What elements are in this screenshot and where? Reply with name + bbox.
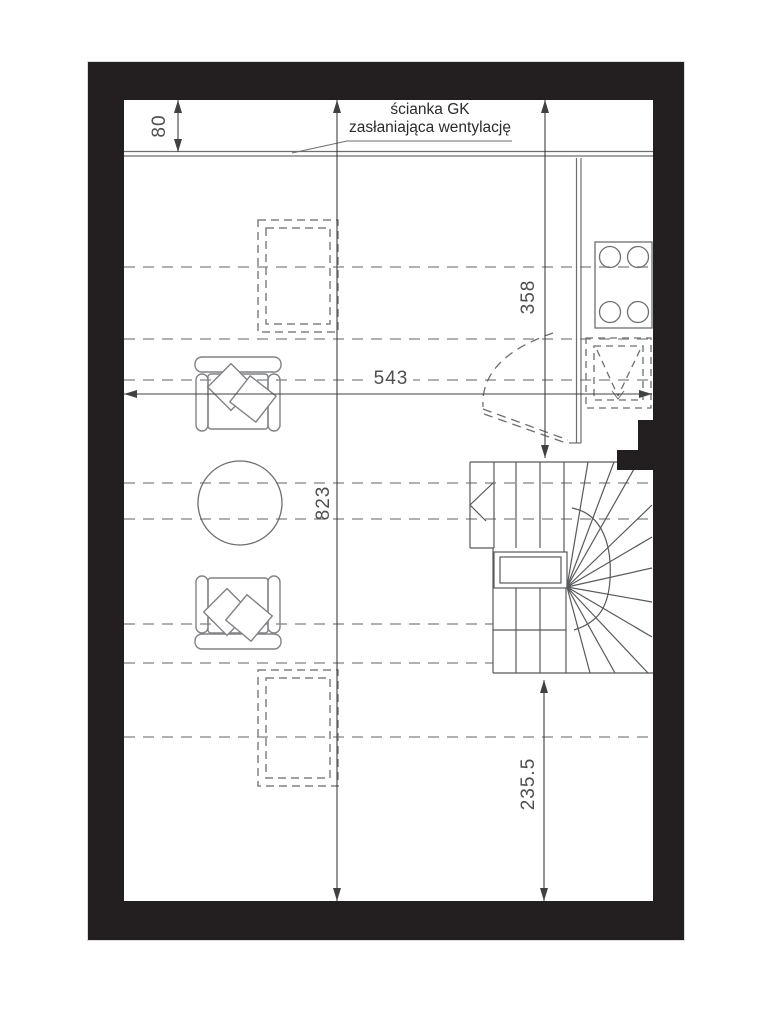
- dim-line-358: [541, 100, 549, 458]
- stair-winder-fan: [567, 462, 652, 673]
- gk-partition-wall: [124, 152, 653, 157]
- roof-slope-dashed-lines: [124, 267, 653, 737]
- floor-plan-canvas: ścianka GK zasłaniająca wentylację 80 35…: [0, 0, 759, 1024]
- burner-icon: [600, 247, 621, 268]
- door-swing: [483, 333, 569, 444]
- armchair-lower: [195, 576, 281, 649]
- burner-icon: [628, 302, 649, 323]
- door-leaf: [484, 414, 569, 444]
- table-upper-dashed: [258, 220, 338, 332]
- burner-icon: [600, 302, 621, 323]
- dim-label-235: 235.5: [516, 744, 542, 824]
- floor-plan-linework: [0, 0, 759, 1024]
- wall-note-line1: ścianka GK: [330, 101, 530, 119]
- dimension-lines: [124, 100, 652, 901]
- kitchen-appliance-dashed: [586, 338, 651, 408]
- kitchen-cooktop: [595, 242, 652, 328]
- dim-line-543: [124, 390, 652, 398]
- stair-direction-chevron: [470, 483, 493, 521]
- table-lower-dashed: [258, 670, 338, 786]
- round-table: [198, 461, 282, 545]
- door-leaf: [483, 409, 568, 440]
- door-swing-arc: [483, 333, 553, 407]
- wall-note-line2: zasłaniająca wentylację: [322, 119, 538, 137]
- wall-notch: [617, 420, 653, 470]
- burner-icon: [628, 247, 649, 268]
- staircase: [470, 462, 653, 673]
- dim-label-543: 543: [369, 368, 414, 390]
- dim-label-358: 358: [516, 262, 542, 332]
- dim-label-823: 823: [311, 468, 337, 538]
- dim-line-80: [174, 100, 182, 152]
- dim-label-80: 80: [148, 101, 172, 151]
- kitchen-partition-wall: [569, 158, 581, 443]
